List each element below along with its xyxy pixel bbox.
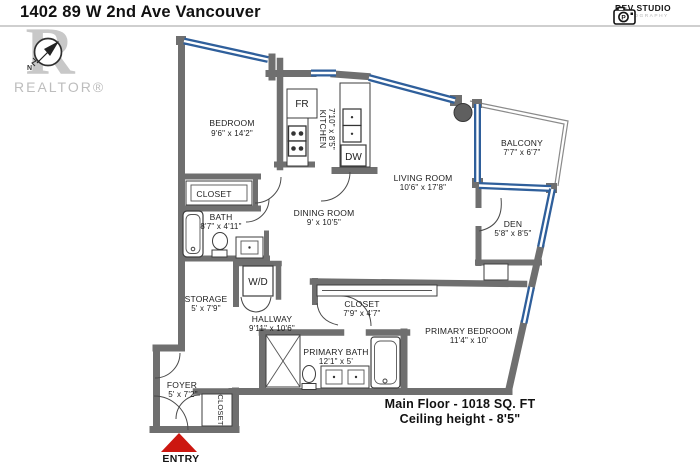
hall-closet-label: CLOSET xyxy=(344,299,379,309)
kitchen-dims: 7'10" x 8'5" xyxy=(327,108,336,150)
bedroom-label: BEDROOM xyxy=(209,118,254,128)
den-label: DEN xyxy=(504,219,523,229)
entry-marker: ENTRY xyxy=(161,433,200,465)
storage-dims: 5' x 7'9" xyxy=(191,304,221,313)
primary-bedroom-dims: 11'4" x 10' xyxy=(450,336,488,345)
bedroom-closet-label: CLOSET xyxy=(196,189,231,199)
entry-arrow xyxy=(161,433,197,452)
primary-bath-dims: 12'1" x 5' xyxy=(319,357,353,366)
bath-label: BATH xyxy=(210,212,233,222)
kitchen-sink xyxy=(343,109,361,142)
bath-dims: 8'7" x 4'11" xyxy=(200,222,241,231)
hall-closet-sliding-door xyxy=(317,285,437,296)
dishwasher-label: DW xyxy=(345,152,362,163)
washer-dryer-label: W/D xyxy=(248,277,267,288)
fridge-label: FR xyxy=(295,99,308,110)
hallway-label: HALLWAY xyxy=(252,314,293,324)
hallway-dims: 9'11" x 10'6" xyxy=(249,324,295,333)
stove xyxy=(289,126,307,156)
balcony-dims: 7'7" x 6'7" xyxy=(503,148,540,157)
dining-label: DINING ROOM xyxy=(294,208,355,218)
bedroom-dims: 9'6" x 14'2" xyxy=(211,129,253,138)
kitchen-label: KITCHEN xyxy=(318,110,328,149)
floorplan-page: 1402 89 W 2nd Ave Vancouver P REV STUDIO… xyxy=(0,0,700,466)
balcony-label: BALCONY xyxy=(501,138,543,148)
structural-column xyxy=(454,104,472,122)
entry-label: ENTRY xyxy=(162,453,199,465)
primary-bath-label: PRIMARY BATH xyxy=(303,347,368,357)
den-dims: 5'8" x 8'5" xyxy=(494,229,531,238)
foyer-label: FOYER xyxy=(167,380,197,390)
dining-dims: 9' x 10'5" xyxy=(307,218,341,227)
living-label: LIVING ROOM xyxy=(394,173,453,183)
storage-label: STORAGE xyxy=(185,294,228,304)
ceiling-height: Ceiling height - 8'5" xyxy=(330,412,590,427)
den-closet xyxy=(484,264,508,280)
plan-summary: Main Floor - 1018 SQ. FT Ceiling height … xyxy=(330,397,590,427)
primary-bedroom-label: PRIMARY BEDROOM xyxy=(425,326,513,336)
living-dims: 10'6" x 17'8" xyxy=(400,183,446,192)
floor-area: Main Floor - 1018 SQ. FT xyxy=(330,397,590,412)
foyer-dims: 5' x 7'2" xyxy=(168,390,198,399)
hall-closet-dims: 7'9" x 4'7" xyxy=(343,309,380,318)
foyer-closet-label: CLOSET xyxy=(216,394,225,425)
